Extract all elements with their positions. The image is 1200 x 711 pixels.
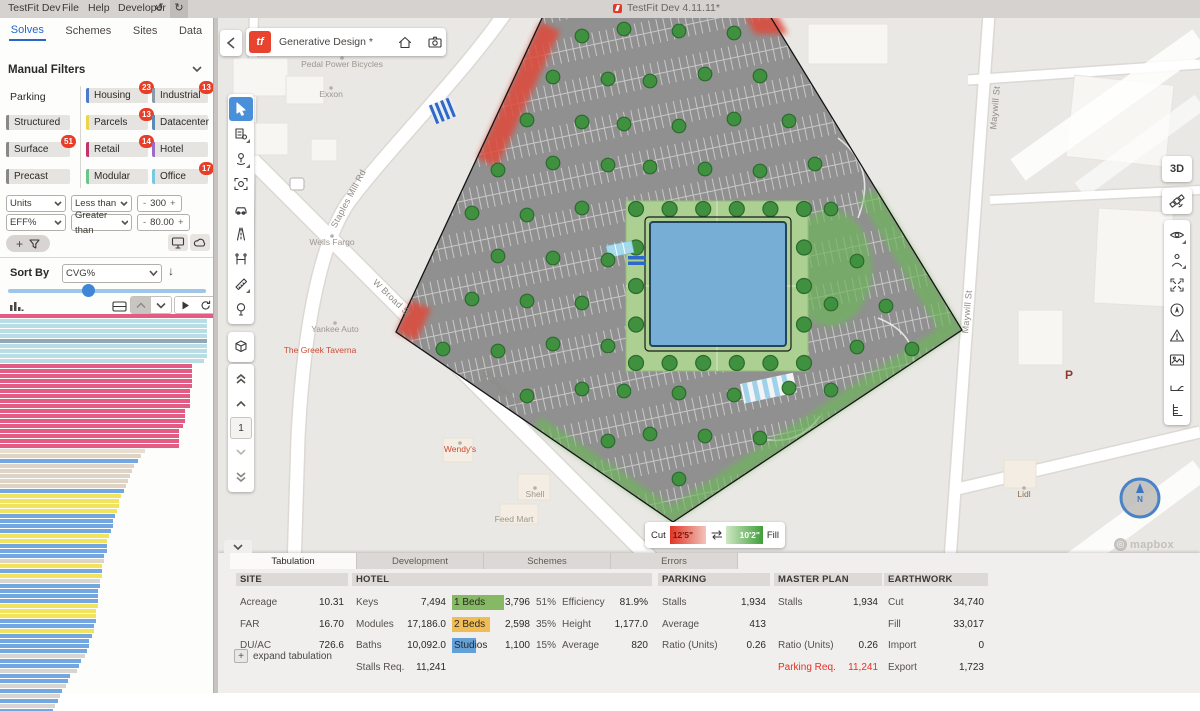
filter-chip-structured[interactable]: Structured xyxy=(6,115,70,130)
filter-op-select[interactable]: Greater than xyxy=(71,214,132,231)
level-up-button[interactable] xyxy=(229,392,253,416)
view-toolbar xyxy=(1164,220,1190,425)
tab-schemes[interactable]: Schemes xyxy=(484,553,611,569)
count-badge: 17 xyxy=(199,162,214,175)
solve-bar[interactable] xyxy=(0,484,126,488)
filter-chip-office[interactable]: Office17 xyxy=(152,169,208,184)
filter-chip-modular[interactable]: Modular xyxy=(86,169,148,184)
street-label: Feed Mart xyxy=(495,514,534,524)
table-row: Modules17,186.02 Beds2,59835%Height1,177… xyxy=(354,619,650,635)
solve-bar[interactable] xyxy=(0,539,107,543)
chevron-down-icon[interactable] xyxy=(191,65,203,73)
street-label: Wells Fargo xyxy=(309,237,354,247)
tree xyxy=(546,156,560,170)
table-row: Ratio (Units)0.26 xyxy=(776,640,880,656)
sort-by-label: Sort By xyxy=(10,267,49,279)
fill-depth: 10'2" xyxy=(726,526,762,544)
tree xyxy=(763,202,778,217)
top-level-button[interactable] xyxy=(229,367,253,391)
tree xyxy=(436,342,450,356)
select-tool[interactable] xyxy=(229,97,253,121)
tree xyxy=(797,356,812,371)
table-row: Baths10,092.0Studios1,10015%Average820 xyxy=(354,640,650,656)
swap-icon[interactable] xyxy=(710,530,722,540)
filter-chip-housing[interactable]: Housing23 xyxy=(86,88,148,103)
massing-3d-toolbar xyxy=(228,332,254,362)
tree xyxy=(491,163,505,177)
tabulation-tabs: TabulationDevelopmentSchemesErrors xyxy=(230,553,738,569)
tree xyxy=(575,382,589,396)
cloud-compute-button[interactable] xyxy=(190,234,210,251)
manual-filters-header[interactable]: Manual Filters xyxy=(8,64,85,76)
tree xyxy=(575,115,589,129)
solve-bar[interactable] xyxy=(0,549,107,553)
tree xyxy=(696,356,711,371)
decrement-button[interactable]: - xyxy=(143,215,146,230)
tree xyxy=(824,383,838,397)
divider xyxy=(80,86,81,188)
tree xyxy=(617,117,631,131)
tree xyxy=(696,202,711,217)
solve-bar[interactable] xyxy=(0,609,96,613)
tree xyxy=(546,251,560,265)
massing-tool[interactable] xyxy=(229,122,253,146)
street-label: Exxon xyxy=(319,89,343,99)
parking-group-label: Parking xyxy=(10,91,46,103)
redo-icon[interactable]: ↻ xyxy=(170,0,188,18)
current-level[interactable]: 1 xyxy=(230,417,252,439)
solve-bar[interactable] xyxy=(0,434,179,438)
plus-icon: + xyxy=(234,649,248,663)
solve-bar[interactable] xyxy=(0,599,98,603)
filter-chip-datacenter[interactable]: Datacenter xyxy=(152,115,208,130)
table-row: FAR16.70 xyxy=(238,619,346,635)
street-label: Wendy's xyxy=(444,444,476,454)
filter-value-stepper: - 80.00 + xyxy=(137,214,190,231)
table-row: Keys7,4941 Beds3,79651%Efficiency81.9% xyxy=(354,597,650,613)
solve-bar[interactable] xyxy=(0,384,192,388)
increment-button[interactable]: + xyxy=(170,196,176,211)
tree xyxy=(824,297,838,311)
run-buttons xyxy=(174,296,216,314)
solver-sidebar: SolvesSchemesSitesData Manual Filters Pa… xyxy=(0,18,213,693)
table-row: Stalls1,934 xyxy=(776,597,880,613)
home-view-button[interactable] xyxy=(394,31,416,53)
render-image-button[interactable] xyxy=(1165,348,1189,372)
tab-errors[interactable]: Errors xyxy=(611,553,738,569)
solve-bar[interactable] xyxy=(0,439,179,443)
street-label: Shell xyxy=(526,489,545,499)
filter-funnel-icon xyxy=(29,239,40,249)
undo-icon[interactable]: ↺ xyxy=(150,0,168,18)
table-row: Ratio (Units)0.26 xyxy=(660,640,768,656)
solve-bar[interactable] xyxy=(0,639,89,643)
tree xyxy=(850,340,864,354)
solve-bar[interactable] xyxy=(0,544,107,548)
solve-bar[interactable] xyxy=(0,579,100,583)
solve-bar[interactable] xyxy=(0,499,119,503)
filter-row-2: EFF% Greater than - 80.00 + xyxy=(6,214,190,230)
tree xyxy=(672,386,686,400)
filter-field-select[interactable]: EFF% xyxy=(6,214,66,231)
solve-bar[interactable] xyxy=(0,344,207,348)
design-toolbar xyxy=(228,94,254,324)
solve-bar[interactable] xyxy=(0,614,96,618)
table-row: Cut34,740 xyxy=(886,597,986,613)
collapse-panel-button[interactable] xyxy=(224,540,252,553)
solve-bar[interactable] xyxy=(0,374,192,378)
solve-bar[interactable] xyxy=(0,409,185,413)
tab-development[interactable]: Development xyxy=(357,553,484,569)
solve-bar[interactable] xyxy=(0,489,124,493)
tree xyxy=(672,472,686,486)
solve-bar[interactable] xyxy=(0,444,179,448)
measure-tool[interactable] xyxy=(229,272,253,296)
back-button[interactable] xyxy=(220,30,242,56)
tree xyxy=(672,24,686,38)
tree xyxy=(672,119,686,133)
sidebar-tabs: SolvesSchemesSitesData xyxy=(0,20,213,42)
testfit-logo-icon xyxy=(613,4,622,13)
filter-chip-precast[interactable]: Precast xyxy=(6,169,70,184)
refresh-icon[interactable] xyxy=(195,297,215,313)
street-label: Pedal Power Bicycles xyxy=(301,59,383,69)
solve-bar[interactable] xyxy=(0,654,85,658)
scheme-header: tf Generative Design * xyxy=(246,28,446,56)
count-badge: 51 xyxy=(61,135,76,148)
cloud-icon xyxy=(193,237,207,248)
menu-file[interactable]: File xyxy=(62,2,79,14)
tree xyxy=(782,114,796,128)
tree xyxy=(727,26,741,40)
filter-chip-surface[interactable]: Surface51 xyxy=(6,142,70,157)
solve-bar[interactable] xyxy=(0,469,132,473)
fill-label: Fill xyxy=(767,530,779,541)
tree xyxy=(753,69,767,83)
cut-label: Cut xyxy=(651,530,666,541)
solve-bar[interactable] xyxy=(0,664,79,668)
cut-depth: 12'5" xyxy=(670,526,706,544)
street-label: Lidl xyxy=(1017,489,1030,499)
solve-bar[interactable] xyxy=(0,669,77,673)
solve-bar[interactable] xyxy=(0,399,190,403)
compass-reset-button[interactable] xyxy=(1165,298,1189,322)
solve-bar[interactable] xyxy=(0,319,207,323)
next-solve-button[interactable] xyxy=(151,297,171,313)
tree xyxy=(643,74,657,88)
tree xyxy=(850,254,864,268)
satellite-button[interactable] xyxy=(1162,188,1192,214)
tree xyxy=(601,72,615,86)
solve-bar[interactable] xyxy=(0,334,207,338)
visibility-tool[interactable] xyxy=(1165,223,1189,247)
compass-widget[interactable]: N xyxy=(1118,476,1162,520)
level-selector: 1 xyxy=(228,364,254,492)
solve-bar[interactable] xyxy=(0,364,192,368)
tree xyxy=(729,356,744,371)
solve-bar[interactable] xyxy=(0,464,134,468)
solve-bar[interactable] xyxy=(0,694,60,698)
bar-chart-icon[interactable] xyxy=(10,300,24,312)
solve-bar[interactable] xyxy=(0,449,145,453)
solve-bar[interactable] xyxy=(0,459,138,463)
filter-value-stepper: - 300 + xyxy=(137,195,182,212)
solve-bar[interactable] xyxy=(0,414,185,418)
tree xyxy=(465,206,479,220)
table-row: Fill33,017 xyxy=(886,619,986,635)
building-footprint[interactable] xyxy=(650,222,786,346)
table-row: Stalls1,934 xyxy=(660,597,768,613)
solve-results-chart xyxy=(0,314,213,711)
solve-bar[interactable] xyxy=(0,569,102,573)
street-label: Yankee Auto xyxy=(311,324,359,334)
3d-view-button[interactable]: 3D xyxy=(1162,156,1192,182)
solve-bar[interactable] xyxy=(0,359,204,363)
map-viewport[interactable]: Staples Mill RdW Broad StW Broad StMaywi… xyxy=(218,18,1200,693)
tree xyxy=(629,356,644,371)
testfit-logo-icon: tf xyxy=(249,31,271,53)
street-label: P xyxy=(1065,368,1073,382)
solve-bar[interactable] xyxy=(0,504,119,508)
solve-bar[interactable] xyxy=(0,684,66,688)
tree xyxy=(879,299,893,313)
solve-bar[interactable] xyxy=(0,589,98,593)
tree xyxy=(698,429,712,443)
section-tool[interactable] xyxy=(1165,373,1189,397)
levels-ruler-tool[interactable] xyxy=(1165,398,1189,422)
tree xyxy=(727,112,741,126)
solve-bar[interactable] xyxy=(0,424,183,428)
solve-bar[interactable] xyxy=(0,704,55,708)
solve-bar[interactable] xyxy=(0,494,121,498)
tree xyxy=(601,158,615,172)
solve-bar[interactable] xyxy=(0,679,68,683)
filter-value[interactable]: 80.00 xyxy=(150,215,174,230)
tree xyxy=(797,202,812,217)
tab-schemes[interactable]: Schemes xyxy=(63,22,113,40)
tree xyxy=(617,384,631,398)
solve-bar[interactable] xyxy=(0,454,141,458)
solve-bar[interactable] xyxy=(0,329,207,333)
tree xyxy=(546,70,560,84)
filter-chip-industrial[interactable]: Industrial13 xyxy=(152,88,208,103)
table-row: Stalls Req.11,241 xyxy=(354,662,650,678)
decrement-button[interactable]: - xyxy=(143,196,146,211)
table-row: Export1,723 xyxy=(886,662,986,678)
solve-bar[interactable] xyxy=(0,524,113,528)
solve-bar[interactable] xyxy=(0,394,190,398)
tree xyxy=(797,240,812,255)
solve-bar[interactable] xyxy=(0,699,58,703)
solve-bar[interactable] xyxy=(0,529,111,533)
mapbox-attribution: ◎ mapbox xyxy=(1114,538,1174,551)
tree xyxy=(753,164,767,178)
slider-thumb[interactable] xyxy=(82,284,95,297)
tree-tool[interactable] xyxy=(229,297,253,321)
tree xyxy=(824,202,838,216)
tree xyxy=(782,381,796,395)
tree xyxy=(575,29,589,43)
fit-view-button[interactable] xyxy=(1165,273,1189,297)
tree xyxy=(643,427,657,441)
table-row: Acreage10.31 xyxy=(238,597,346,613)
solve-bar[interactable] xyxy=(0,534,109,538)
tree xyxy=(575,201,589,215)
solve-bar[interactable] xyxy=(0,354,207,358)
tree xyxy=(753,431,767,445)
tree xyxy=(546,337,560,351)
tree xyxy=(520,113,534,127)
solve-bar[interactable] xyxy=(0,624,94,628)
solve-bar[interactable] xyxy=(0,519,113,523)
tree xyxy=(629,317,644,332)
solve-bar[interactable] xyxy=(0,634,92,638)
solve-bar[interactable] xyxy=(0,629,94,633)
sort-direction-icon[interactable]: ↓ xyxy=(168,264,174,278)
svg-text:N: N xyxy=(1137,495,1143,504)
tree xyxy=(601,434,615,448)
solve-slider[interactable] xyxy=(8,289,206,293)
sort-select[interactable]: CVG% xyxy=(62,264,162,283)
tree xyxy=(763,356,778,371)
tree xyxy=(520,294,534,308)
solve-bar[interactable] xyxy=(0,564,102,568)
table-row: Average413 xyxy=(660,619,768,635)
tree xyxy=(698,67,712,81)
stamp-tool[interactable] xyxy=(229,147,253,171)
expand-tabulation-button[interactable]: + expand tabulation xyxy=(234,649,332,663)
solve-bar[interactable] xyxy=(0,324,207,328)
tree xyxy=(662,202,677,217)
table-row xyxy=(776,619,880,635)
increment-button[interactable]: + xyxy=(178,215,184,230)
warnings-button[interactable] xyxy=(1165,323,1189,347)
parking-tool[interactable] xyxy=(229,197,253,221)
tree xyxy=(698,162,712,176)
solve-bar[interactable] xyxy=(0,559,104,563)
window-titlebar: TestFit Dev File Help Developer ↺ ↻ Test… xyxy=(0,0,1200,18)
play-icon[interactable] xyxy=(175,297,195,313)
view-capture-tool[interactable] xyxy=(229,172,253,196)
tree xyxy=(797,317,812,332)
app-title: TestFit Dev 4.11.11* xyxy=(613,2,720,14)
tree xyxy=(575,296,589,310)
prev-solve-button[interactable] xyxy=(131,297,151,313)
tree xyxy=(617,22,631,36)
solve-bar[interactable] xyxy=(0,349,207,353)
solve-bar[interactable] xyxy=(0,619,96,623)
solve-bar[interactable] xyxy=(0,389,190,393)
3d-box-tool[interactable] xyxy=(229,335,253,359)
solve-bar[interactable] xyxy=(0,479,128,483)
mapbox-icon: ◎ xyxy=(1114,538,1127,551)
scheme-name[interactable]: Generative Design * xyxy=(279,36,386,48)
tree xyxy=(520,208,534,222)
street-view-tool[interactable] xyxy=(1165,248,1189,272)
count-badge: 13 xyxy=(199,81,214,94)
solve-bar[interactable] xyxy=(0,314,213,318)
filter-value[interactable]: 300 xyxy=(150,196,166,211)
solve-bar[interactable] xyxy=(0,404,190,408)
tree xyxy=(629,202,644,217)
solve-bar[interactable] xyxy=(0,419,185,423)
solve-bar[interactable] xyxy=(0,644,89,648)
solve-bar[interactable] xyxy=(0,369,192,373)
tree xyxy=(729,202,744,217)
solve-bar[interactable] xyxy=(0,659,81,663)
solve-bar[interactable] xyxy=(0,379,192,383)
tree xyxy=(601,253,615,267)
solve-bar[interactable] xyxy=(0,554,104,558)
gate-tool[interactable] xyxy=(229,247,253,271)
solve-bar[interactable] xyxy=(0,689,62,693)
street-label: The Greek Taverna xyxy=(284,345,357,355)
filter-chip-hotel[interactable]: Hotel xyxy=(152,142,208,157)
tabulation-panel: TabulationDevelopmentSchemesErrors SITEA… xyxy=(218,553,1200,693)
tab-tabulation[interactable]: Tabulation xyxy=(230,553,357,569)
bottom-level-button[interactable] xyxy=(229,465,253,489)
solve-bar[interactable] xyxy=(0,649,87,653)
tree xyxy=(643,160,657,174)
solve-bar[interactable] xyxy=(0,674,70,678)
solve-bar[interactable] xyxy=(0,574,102,578)
solve-bar[interactable] xyxy=(0,474,130,478)
divider xyxy=(0,257,213,258)
screenshot-button[interactable] xyxy=(424,31,446,53)
tab-data[interactable]: Data xyxy=(177,22,204,40)
tree xyxy=(629,279,644,294)
solve-bar[interactable] xyxy=(0,584,100,588)
table-row: Import0 xyxy=(886,640,986,656)
solve-bar[interactable] xyxy=(0,604,98,608)
filter-chip-retail[interactable]: Retail14 xyxy=(86,142,148,157)
cutfill-legend: Cut 12'5" 10'2" Fill xyxy=(645,522,785,548)
tab-sites[interactable]: Sites xyxy=(131,22,159,40)
tree xyxy=(491,344,505,358)
table-row: Parking Req.11,241 xyxy=(776,662,880,678)
tree xyxy=(808,157,822,171)
tab-solves[interactable]: Solves xyxy=(9,21,46,41)
solve-bar[interactable] xyxy=(0,514,115,518)
solve-bar[interactable] xyxy=(0,339,207,343)
add-filter-button[interactable]: + xyxy=(6,235,50,252)
tree xyxy=(727,388,741,402)
solve-bar[interactable] xyxy=(0,509,117,513)
card-view-icon[interactable] xyxy=(112,301,127,312)
menu-testfit-dev[interactable]: TestFit Dev xyxy=(8,2,61,14)
tree xyxy=(601,339,615,353)
tree xyxy=(662,356,677,371)
solve-bar[interactable] xyxy=(0,429,179,433)
tree xyxy=(491,249,505,263)
tree xyxy=(465,292,479,306)
filter-field-select[interactable]: Units xyxy=(6,195,66,212)
level-down-button[interactable] xyxy=(229,440,253,464)
local-compute-button[interactable] xyxy=(168,234,188,251)
monitor-icon xyxy=(171,237,185,249)
filter-chip-parcels[interactable]: Parcels13 xyxy=(86,115,148,130)
tree xyxy=(797,279,812,294)
road-tool[interactable] xyxy=(229,222,253,246)
step-buttons xyxy=(130,296,172,314)
menu-help[interactable]: Help xyxy=(88,2,110,14)
tree xyxy=(905,342,919,356)
solve-bar[interactable] xyxy=(0,594,98,598)
